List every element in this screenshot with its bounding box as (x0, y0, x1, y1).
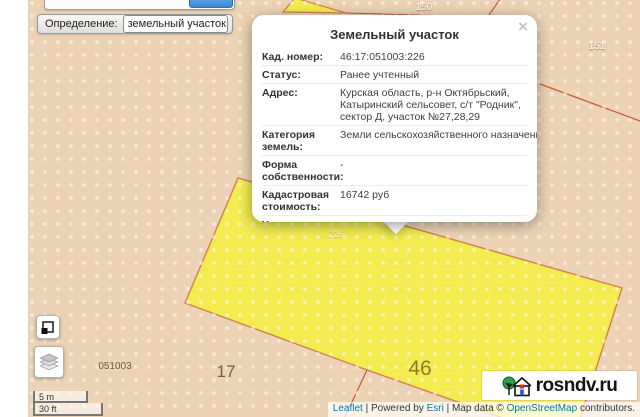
scale-bar-metric: 5 m (33, 391, 88, 403)
field-label: Адрес: (262, 87, 340, 123)
field-label: Кадастровая стоимость: (262, 189, 340, 213)
area-select-icon (40, 319, 56, 335)
field-label: Категория земель: (262, 129, 340, 153)
leaflet-link[interactable]: Leaflet (333, 403, 363, 414)
definition-label: Определение: (45, 18, 118, 30)
field-value: 46:17:051003:226 (340, 51, 527, 63)
attribution-text: contributors. (577, 403, 635, 414)
field-value: 16742 руб (340, 189, 527, 213)
definition-toolbar: Определение: земельный участок ▼ (37, 14, 233, 34)
esri-link[interactable]: Esri (427, 403, 444, 414)
parcel-info-popup: × Земельный участок Кад. номер: 46:17:05… (252, 15, 537, 222)
house-tree-logo-icon (502, 374, 532, 398)
field-value: Курская область, р-н Октябрьский, Катыри… (340, 87, 527, 123)
popup-row-cost: Кадастровая стоимость: 16742 руб (262, 185, 527, 215)
osm-link[interactable]: OpenStreetMap (507, 403, 578, 414)
attribution-text: | Powered by (363, 403, 427, 414)
map-attribution: Leaflet | Powered by Esri | Map data © O… (328, 402, 640, 417)
popup-row-category: Категория земель: Земли сельскохозяйстве… (262, 125, 527, 155)
field-label: Форма собственности: (262, 159, 340, 183)
field-label: Статус: (262, 69, 340, 81)
boundary-line-right (540, 84, 640, 121)
field-value: - (340, 159, 527, 183)
popup-row-clipped: Уточненная (262, 215, 527, 222)
attribution-text: | Map data © (444, 403, 507, 414)
area-select-button[interactable] (36, 315, 60, 339)
popup-title: Земельный участок (262, 27, 527, 42)
site-watermark: rosndv.ru (482, 371, 637, 400)
page-left-gutter (0, 0, 29, 417)
field-value (340, 219, 527, 223)
popup-row-cad-number: Кад. номер: 46:17:051003:226 (262, 48, 527, 65)
field-value: Земли сельскохозяйственного назначения (340, 129, 537, 153)
definition-select[interactable]: земельный участок ▼ (123, 15, 228, 33)
close-icon[interactable]: × (518, 18, 528, 35)
layers-icon (38, 351, 60, 373)
layers-button[interactable] (34, 346, 64, 378)
popup-row-ownership: Форма собственности: - (262, 155, 527, 185)
field-label: Кад. номер: (262, 51, 340, 63)
search-input[interactable] (44, 0, 235, 10)
popup-row-status: Статус: Ранее учтенный (262, 65, 527, 83)
watermark-text: rosndv.ru (536, 375, 618, 397)
definition-selected-value: земельный участок (124, 18, 228, 30)
popup-row-address: Адрес: Курская область, р-н Октябрьский,… (262, 83, 527, 125)
cadastral-map-app: 150 151 226 051003 17 46 Определение: зе… (0, 0, 640, 417)
scale-bar-imperial: 30 ft (33, 403, 103, 416)
field-value: Ранее учтенный (340, 69, 527, 81)
search-button[interactable] (189, 0, 233, 8)
field-label: Уточненная (262, 219, 340, 223)
parcel-polygon-top[interactable] (283, 0, 346, 13)
